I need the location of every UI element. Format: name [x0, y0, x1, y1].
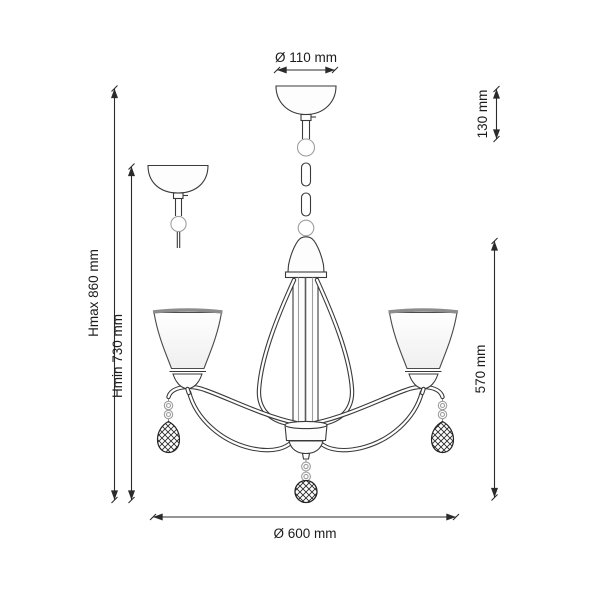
dimension-body-height: 570 mm: [473, 238, 498, 501]
left-arm-loop: [169, 387, 297, 450]
center-column: [286, 237, 327, 428]
bottom-bobeche: [285, 421, 327, 502]
right-lamp-shade: [389, 310, 459, 393]
suspension-chain: [298, 139, 315, 236]
chandelier-dimension-drawing: Ø 110 mm 130 mm Hmax 860 mm Hmin 730 mm …: [0, 0, 600, 600]
ceiling-canopy: [276, 86, 336, 139]
label-suspension-height: 130 mm: [475, 90, 490, 139]
dimension-body-diameter: Ø 600 mm: [150, 514, 459, 541]
right-crystal-drop: [432, 399, 454, 453]
dimension-suspension-height: 130 mm: [475, 86, 500, 142]
drawing-canvas: Ø 110 mm 130 mm Hmax 860 mm Hmin 730 mm …: [0, 0, 600, 600]
hmin-canopy: [148, 166, 208, 249]
label-body-diameter: Ø 600 mm: [273, 526, 336, 541]
left-crystal-drop: [158, 399, 180, 453]
label-top-diameter: Ø 110 mm: [275, 50, 337, 65]
label-body-height: 570 mm: [473, 345, 488, 394]
label-max-height: Hmax 860 mm: [86, 249, 101, 337]
dimension-top-diameter: Ø 110 mm: [274, 50, 338, 73]
left-lamp-shade: [153, 310, 223, 393]
dimension-min-height: Hmin 730 mm: [110, 164, 135, 504]
right-arm-loop: [315, 387, 443, 450]
label-min-height: Hmin 730 mm: [110, 314, 125, 398]
dimension-max-height: Hmax 860 mm: [86, 86, 118, 504]
